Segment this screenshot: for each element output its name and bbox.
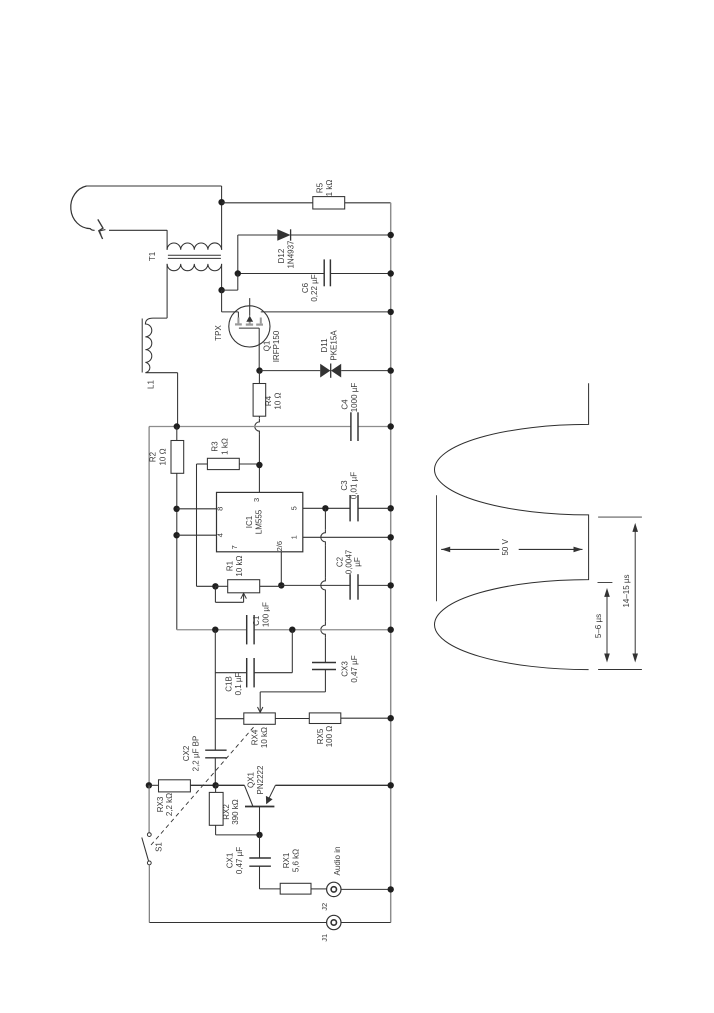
svg-text:RX1: RX1 — [282, 852, 291, 868]
svg-text:D11: D11 — [320, 338, 329, 353]
svg-text:QX1: QX1 — [246, 771, 255, 788]
svg-text:1: 1 — [290, 535, 299, 539]
svg-text:C2: C2 — [335, 556, 344, 567]
svg-text:C1B: C1B — [225, 676, 234, 692]
svg-text:J2: J2 — [320, 903, 329, 911]
svg-text:1 kΩ: 1 kΩ — [325, 180, 334, 197]
svg-text:Audio in: Audio in — [333, 847, 342, 876]
svg-text:2,2 µF BP: 2,2 µF BP — [192, 736, 201, 772]
svg-text:RX4: RX4 — [250, 729, 259, 745]
svg-text:LM555: LM555 — [254, 509, 263, 534]
svg-text:10 Ω: 10 Ω — [274, 392, 283, 409]
svg-text:14–15 µs: 14–15 µs — [622, 574, 631, 607]
svg-text:C4: C4 — [341, 399, 350, 410]
svg-text:2,2 kΩ: 2,2 kΩ — [165, 793, 174, 816]
svg-text:J1: J1 — [320, 934, 329, 942]
svg-text:S1: S1 — [155, 842, 164, 852]
svg-text:10 kΩ: 10 kΩ — [260, 727, 269, 748]
svg-text:R4: R4 — [264, 395, 273, 406]
svg-text:390 kΩ: 390 kΩ — [231, 799, 240, 825]
svg-text:L1: L1 — [147, 380, 156, 389]
svg-text:CX1: CX1 — [226, 852, 235, 868]
svg-text:PN2222: PN2222 — [256, 765, 265, 794]
svg-text:R2: R2 — [149, 451, 158, 462]
svg-text:µF: µF — [353, 557, 362, 567]
svg-text:R1: R1 — [225, 560, 234, 571]
svg-text:1N4937: 1N4937 — [287, 240, 296, 269]
svg-text:TPX: TPX — [214, 325, 223, 341]
svg-text:3: 3 — [252, 498, 261, 502]
svg-text:1000 µF: 1000 µF — [350, 383, 359, 413]
svg-text:10 Ω: 10 Ω — [158, 448, 167, 465]
svg-text:0,22 µF: 0,22 µF — [310, 274, 319, 301]
svg-text:C3: C3 — [340, 480, 349, 491]
svg-text:5–6 µs: 5–6 µs — [594, 614, 603, 638]
svg-text:0,01 µF: 0,01 µF — [350, 472, 359, 499]
svg-text:0,47 µF: 0,47 µF — [350, 655, 359, 682]
svg-text:1 kΩ: 1 kΩ — [220, 438, 229, 455]
svg-text:D12: D12 — [277, 248, 286, 263]
svg-text:C1: C1 — [252, 615, 261, 626]
svg-text:RX5: RX5 — [316, 728, 325, 744]
svg-text:Q1: Q1 — [263, 340, 272, 351]
svg-text:RX3: RX3 — [156, 796, 165, 812]
svg-text:R3: R3 — [211, 441, 220, 452]
svg-text:8: 8 — [216, 507, 225, 511]
svg-text:IRFP150: IRFP150 — [272, 330, 281, 362]
svg-text:4: 4 — [216, 533, 225, 537]
svg-text:2/6: 2/6 — [275, 541, 284, 551]
svg-text:T1: T1 — [148, 251, 157, 261]
svg-text:100 µF: 100 µF — [261, 602, 270, 627]
svg-text:5,6 kΩ: 5,6 kΩ — [291, 849, 300, 872]
svg-text:PKE15A: PKE15A — [330, 330, 339, 361]
svg-text:CX3: CX3 — [341, 661, 350, 677]
svg-text:100 Ω: 100 Ω — [325, 726, 334, 748]
svg-text:7: 7 — [230, 545, 239, 549]
svg-text:0,47 µF: 0,47 µF — [235, 847, 244, 874]
svg-text:5: 5 — [290, 506, 299, 510]
svg-text:C6: C6 — [301, 282, 310, 293]
svg-text:10 kΩ: 10 kΩ — [235, 555, 244, 576]
svg-text:50 V: 50 V — [501, 538, 510, 555]
svg-text:IC1: IC1 — [245, 515, 254, 528]
svg-text:CX2: CX2 — [182, 745, 191, 761]
svg-text:RX2: RX2 — [222, 804, 231, 820]
svg-text:0,1 µF: 0,1 µF — [234, 672, 243, 695]
svg-text:R5: R5 — [315, 182, 324, 193]
